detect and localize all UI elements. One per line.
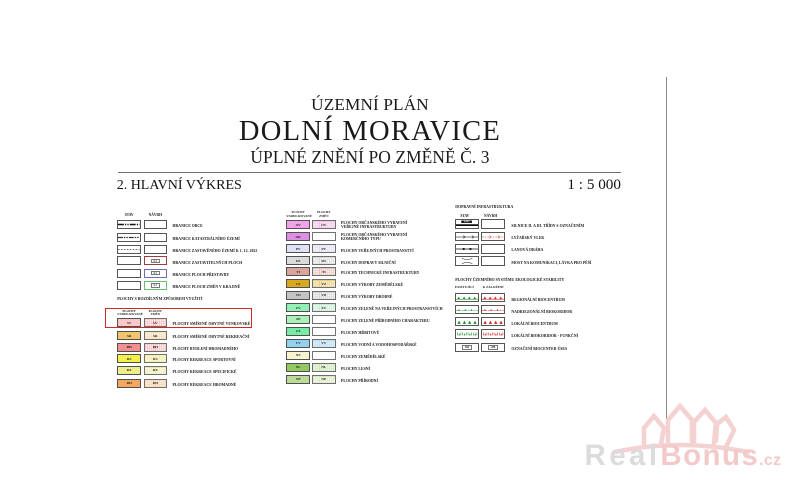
svg-text:II/445: II/445	[464, 222, 470, 224]
